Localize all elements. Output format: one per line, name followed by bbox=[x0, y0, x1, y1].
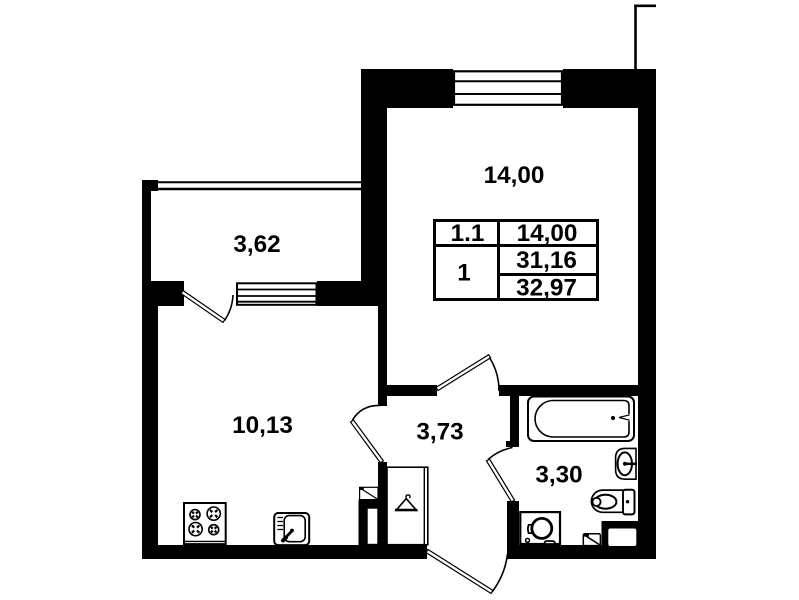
svg-text:3,62: 3,62 bbox=[233, 231, 280, 258]
svg-text:1.1: 1.1 bbox=[451, 220, 485, 247]
svg-text:14,00: 14,00 bbox=[484, 162, 545, 189]
svg-text:1: 1 bbox=[457, 259, 471, 286]
svg-text:32,97: 32,97 bbox=[516, 274, 577, 301]
svg-text:3,30: 3,30 bbox=[535, 462, 582, 489]
svg-text:31,16: 31,16 bbox=[516, 247, 577, 274]
svg-text:3,73: 3,73 bbox=[416, 419, 463, 446]
svg-text:14,00: 14,00 bbox=[517, 220, 578, 247]
svg-text:10,13: 10,13 bbox=[232, 412, 293, 439]
